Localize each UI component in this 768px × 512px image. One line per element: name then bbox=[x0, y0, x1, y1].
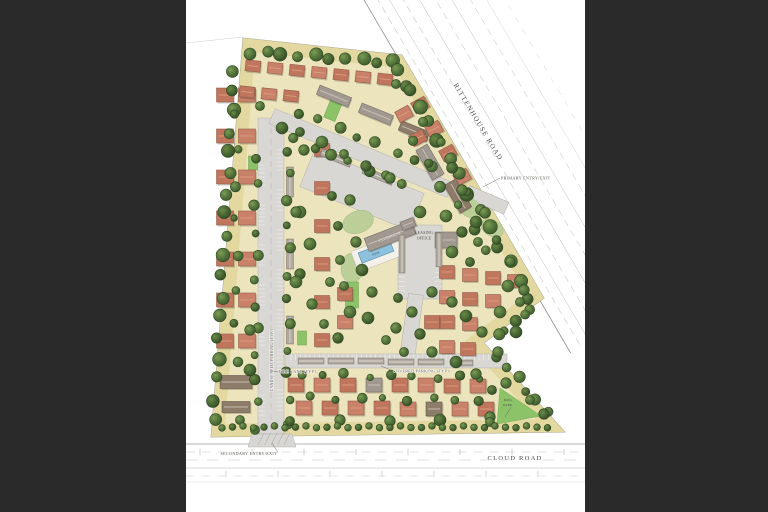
tree bbox=[254, 179, 262, 187]
tree bbox=[282, 424, 289, 431]
site-plan-canvas: RITTENHOUSE ROAD CLOUD ROAD PRIMARY ENTR… bbox=[0, 0, 768, 512]
tree bbox=[521, 310, 530, 319]
covered-parking-label: COVERED PARKING (TYP.) bbox=[393, 369, 450, 374]
tree bbox=[338, 368, 348, 378]
tree bbox=[271, 423, 278, 430]
tree bbox=[281, 195, 292, 206]
tree bbox=[323, 53, 334, 64]
tree bbox=[263, 46, 274, 57]
tree bbox=[334, 423, 341, 430]
tree bbox=[492, 423, 499, 430]
tree bbox=[387, 424, 394, 431]
tree bbox=[325, 149, 336, 160]
tree bbox=[303, 423, 310, 430]
tree bbox=[222, 231, 232, 241]
tree bbox=[211, 333, 222, 344]
tree bbox=[523, 423, 530, 430]
tree bbox=[525, 395, 534, 404]
tree bbox=[501, 378, 512, 389]
tree bbox=[437, 138, 446, 147]
tree bbox=[439, 424, 446, 431]
tree bbox=[221, 144, 234, 157]
tree bbox=[455, 371, 465, 381]
tree bbox=[290, 276, 302, 288]
tree bbox=[313, 114, 322, 123]
tree bbox=[319, 319, 328, 328]
tree bbox=[454, 201, 462, 209]
tree bbox=[283, 147, 292, 156]
tree bbox=[220, 189, 232, 201]
tree bbox=[339, 53, 351, 65]
tree bbox=[376, 424, 383, 431]
tree bbox=[306, 392, 314, 400]
tree bbox=[210, 413, 222, 425]
tree bbox=[325, 277, 334, 286]
tree bbox=[285, 416, 294, 425]
tree bbox=[292, 424, 299, 431]
tree bbox=[355, 424, 362, 431]
secondary-entry-label: SECONDARY ENTRY/EXIT bbox=[220, 451, 277, 456]
tree bbox=[276, 122, 288, 134]
tree bbox=[407, 307, 418, 318]
tree bbox=[367, 374, 374, 381]
tree bbox=[429, 423, 436, 430]
tree bbox=[345, 195, 356, 206]
tree bbox=[291, 207, 302, 218]
tree bbox=[351, 237, 362, 248]
tree bbox=[294, 109, 304, 119]
tree bbox=[251, 303, 260, 312]
tree bbox=[457, 227, 468, 238]
tree bbox=[450, 424, 457, 431]
tree bbox=[231, 215, 238, 222]
tree bbox=[391, 79, 400, 88]
tree bbox=[379, 394, 386, 401]
tree bbox=[313, 424, 320, 431]
tree bbox=[522, 387, 530, 395]
tree bbox=[295, 127, 304, 136]
tree bbox=[283, 272, 291, 280]
tree bbox=[493, 347, 504, 358]
tree bbox=[213, 309, 226, 322]
fire-lane-label: FIRE LANE (TYP.) bbox=[279, 369, 317, 374]
leasing-office-label-line2: OFFICE bbox=[417, 237, 432, 241]
tree bbox=[515, 297, 524, 306]
tree bbox=[481, 424, 488, 431]
tree bbox=[393, 149, 402, 158]
tree bbox=[408, 424, 415, 431]
tree bbox=[510, 326, 522, 338]
tree bbox=[283, 222, 290, 229]
tree bbox=[252, 154, 261, 163]
tree bbox=[285, 319, 295, 329]
tree bbox=[244, 364, 256, 376]
dog-park-label-line1: DOG bbox=[504, 398, 512, 402]
tree bbox=[544, 424, 551, 431]
tree bbox=[212, 372, 222, 382]
tree bbox=[481, 246, 490, 255]
tree bbox=[215, 269, 226, 280]
tree bbox=[446, 246, 458, 258]
tree bbox=[250, 425, 257, 432]
tree bbox=[369, 136, 380, 147]
tree bbox=[431, 394, 439, 402]
tree bbox=[327, 191, 336, 200]
tree bbox=[483, 220, 497, 234]
tree bbox=[216, 248, 230, 262]
tree bbox=[230, 110, 239, 119]
tree bbox=[324, 424, 331, 431]
tree bbox=[391, 323, 402, 334]
tree bbox=[252, 230, 259, 237]
tree bbox=[534, 424, 541, 431]
tree bbox=[225, 167, 236, 178]
tree bbox=[353, 134, 361, 142]
tree bbox=[299, 145, 310, 156]
tree bbox=[284, 347, 291, 354]
tree bbox=[434, 414, 446, 426]
tree bbox=[506, 257, 515, 266]
landscaped-parking-label: LANDSCAPED PARKING (TYP.) bbox=[270, 328, 274, 391]
tree bbox=[366, 423, 373, 430]
tree bbox=[240, 423, 247, 430]
tree bbox=[332, 396, 339, 403]
tree bbox=[399, 347, 408, 356]
tree bbox=[286, 396, 294, 404]
tree bbox=[226, 65, 238, 77]
tree bbox=[393, 293, 402, 302]
tree bbox=[451, 396, 459, 404]
tree bbox=[213, 352, 227, 366]
tree bbox=[447, 162, 458, 173]
tree bbox=[249, 200, 260, 211]
tree bbox=[233, 357, 243, 367]
tree bbox=[232, 287, 240, 295]
cloud-road-label: CLOUD ROAD bbox=[487, 455, 542, 462]
tree bbox=[244, 48, 256, 60]
tree bbox=[418, 424, 425, 431]
tree bbox=[415, 329, 426, 340]
tree bbox=[310, 48, 323, 61]
tree bbox=[356, 264, 368, 276]
tree bbox=[502, 363, 511, 372]
tree bbox=[344, 306, 356, 318]
tree bbox=[357, 393, 367, 403]
tree bbox=[494, 329, 505, 340]
tree bbox=[470, 216, 482, 228]
tree bbox=[255, 101, 264, 110]
lawn-panel bbox=[298, 331, 307, 345]
tree bbox=[477, 327, 488, 338]
screenshot-root: RITTENHOUSE ROAD CLOUD ROAD PRIMARY ENTR… bbox=[0, 0, 768, 512]
tree bbox=[492, 236, 501, 245]
tree bbox=[502, 424, 509, 431]
tree bbox=[245, 325, 256, 336]
tree bbox=[282, 294, 291, 303]
tree bbox=[519, 285, 530, 296]
tree bbox=[273, 47, 287, 61]
tree bbox=[414, 206, 426, 218]
tree bbox=[358, 52, 371, 65]
tree bbox=[427, 347, 438, 358]
dog-park-label-line2: PARK bbox=[503, 403, 513, 407]
tree bbox=[219, 425, 226, 432]
tree bbox=[253, 250, 263, 260]
tree bbox=[502, 280, 514, 292]
tree bbox=[514, 371, 526, 383]
tree bbox=[473, 237, 482, 246]
tree bbox=[391, 63, 404, 76]
tree bbox=[345, 424, 352, 431]
tree bbox=[218, 206, 231, 219]
tree bbox=[410, 156, 419, 165]
tree bbox=[404, 84, 416, 96]
tree bbox=[434, 375, 442, 383]
tree bbox=[402, 396, 412, 406]
tree bbox=[474, 396, 484, 406]
tree bbox=[224, 129, 234, 139]
tree bbox=[335, 122, 346, 133]
tree bbox=[408, 136, 418, 146]
tree bbox=[362, 312, 374, 324]
tree bbox=[372, 58, 382, 68]
tree bbox=[447, 297, 458, 308]
tree bbox=[250, 276, 258, 284]
tree bbox=[457, 185, 468, 196]
tree bbox=[510, 315, 522, 327]
tree bbox=[427, 287, 438, 298]
tree bbox=[316, 136, 328, 148]
tree bbox=[381, 335, 390, 344]
tree bbox=[434, 181, 445, 192]
tree bbox=[335, 255, 344, 264]
tree bbox=[413, 100, 427, 114]
tree bbox=[424, 159, 433, 168]
leasing-office-label-line1: LEASING bbox=[415, 231, 433, 235]
tree bbox=[233, 251, 243, 261]
tree bbox=[471, 369, 482, 380]
tree bbox=[307, 299, 318, 310]
tree bbox=[487, 385, 496, 394]
tree bbox=[230, 182, 240, 192]
tree bbox=[471, 424, 478, 431]
tree bbox=[480, 207, 491, 218]
tree bbox=[217, 292, 229, 304]
tree bbox=[230, 319, 238, 327]
tree bbox=[333, 333, 344, 344]
tree bbox=[397, 179, 406, 188]
tree bbox=[339, 281, 348, 290]
tree bbox=[440, 210, 452, 222]
tree bbox=[254, 398, 262, 406]
tree bbox=[206, 395, 219, 408]
tree bbox=[465, 257, 474, 266]
tree bbox=[251, 352, 258, 359]
tree bbox=[339, 149, 348, 158]
tree bbox=[385, 173, 396, 184]
tree bbox=[450, 356, 462, 368]
tree bbox=[367, 287, 378, 298]
tree bbox=[539, 409, 550, 420]
tree bbox=[292, 52, 302, 62]
tree bbox=[285, 243, 295, 253]
tree bbox=[460, 310, 472, 322]
tree bbox=[235, 146, 243, 154]
tree bbox=[319, 371, 326, 378]
primary-entry-label: PRIMARY ENTRY/EXIT bbox=[501, 176, 551, 181]
tree bbox=[261, 424, 268, 431]
tree bbox=[397, 423, 404, 430]
tree bbox=[513, 424, 520, 431]
tree bbox=[418, 117, 428, 127]
tree bbox=[333, 221, 342, 230]
tree bbox=[460, 423, 467, 430]
tree bbox=[494, 306, 506, 318]
tree bbox=[361, 161, 372, 172]
tree bbox=[229, 424, 236, 431]
tree bbox=[304, 238, 316, 250]
tree bbox=[226, 85, 237, 96]
tree bbox=[286, 169, 294, 177]
